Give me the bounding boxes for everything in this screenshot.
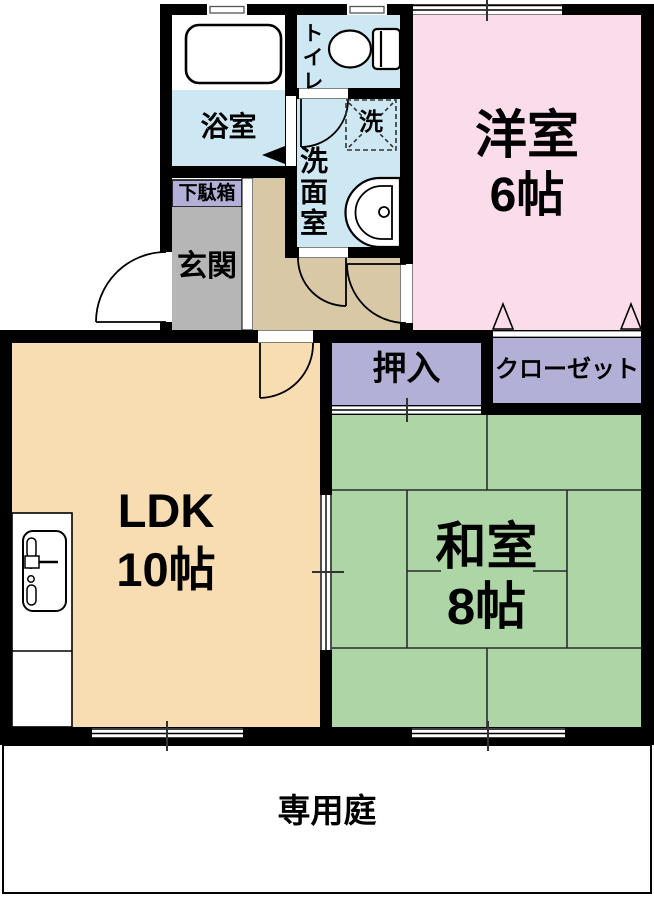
closet-label: クローゼット [493,358,641,382]
entrance-label: 玄関 [172,252,242,282]
shoe-cabinet-label: 下駄箱 [172,184,242,203]
entrance-step [242,178,253,330]
western-room-size: 6帖 [413,172,641,220]
toilet-label: トイレ [301,22,322,94]
window-top-toilet [347,4,387,15]
toilet-icon [329,29,400,69]
ldk-label: LDK [12,487,320,534]
washroom-label: 洗面室 [298,146,326,239]
western-room-label: 洋室 [413,110,641,162]
bathroom-label: 浴室 [172,113,285,141]
ldk-size: 10帖 [12,546,320,593]
floor-plan: 浴室 トイレ 洗面室 洗 下駄箱 玄関 洋室 6帖 LDK 10帖 和室 8帖 … [0,0,654,899]
laundry-space-label: 洗 [346,111,396,135]
japanese-room-label: 和室 [332,521,641,572]
oshiire-label: 押入 [332,352,481,386]
window-top-bath [207,4,247,15]
door-entrance [96,252,166,322]
japanese-room-size: 8帖 [332,581,641,632]
private-garden-label: 専用庭 [3,794,651,827]
bathtub-icon [186,25,281,83]
